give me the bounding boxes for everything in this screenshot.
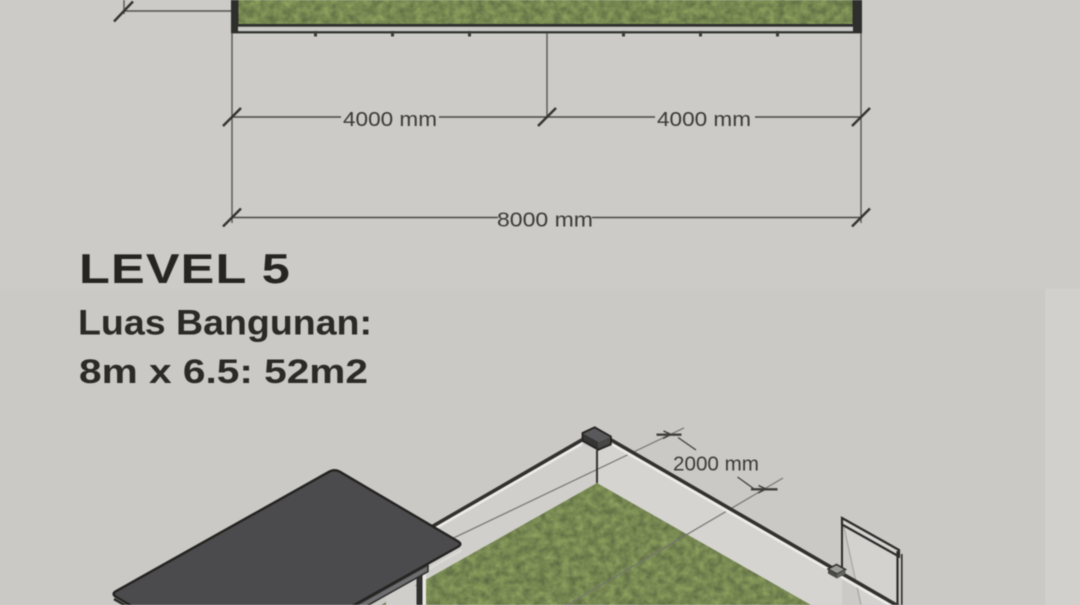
svg-text:2000 mm: 2000 mm (673, 454, 759, 476)
svg-text:8000 mm: 8000 mm (497, 210, 593, 232)
svg-text:8m x 6.5: 52m2: 8m x 6.5: 52m2 (79, 353, 368, 391)
svg-text:Luas Bangunan:: Luas Bangunan: (78, 304, 372, 343)
svg-text:4000 mm: 4000 mm (657, 109, 751, 131)
svg-text:4000 mm: 4000 mm (343, 109, 437, 131)
svg-text:LEVEL 5: LEVEL 5 (79, 245, 291, 292)
